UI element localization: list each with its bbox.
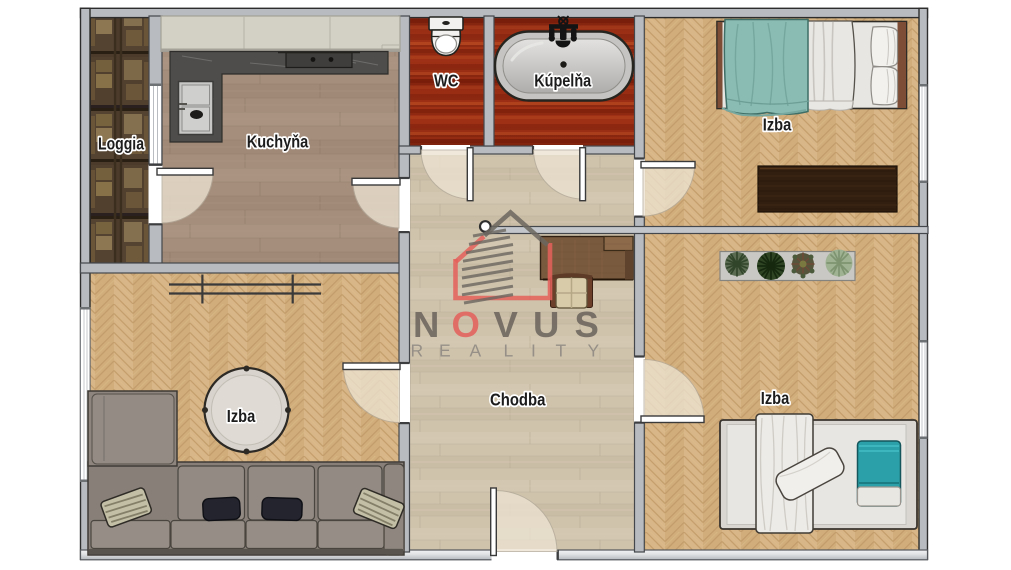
svg-text:Kúpelňa: Kúpelňa — [534, 70, 591, 90]
svg-text:Izba: Izba — [227, 406, 256, 426]
svg-text:Kuchyňa: Kuchyňa — [247, 132, 309, 152]
svg-text:WC: WC — [434, 71, 459, 91]
svg-text:Loggia: Loggia — [98, 134, 144, 154]
svg-text:Izba: Izba — [761, 388, 790, 408]
svg-text:Chodba: Chodba — [490, 389, 546, 409]
svg-text:Izba: Izba — [763, 115, 792, 135]
